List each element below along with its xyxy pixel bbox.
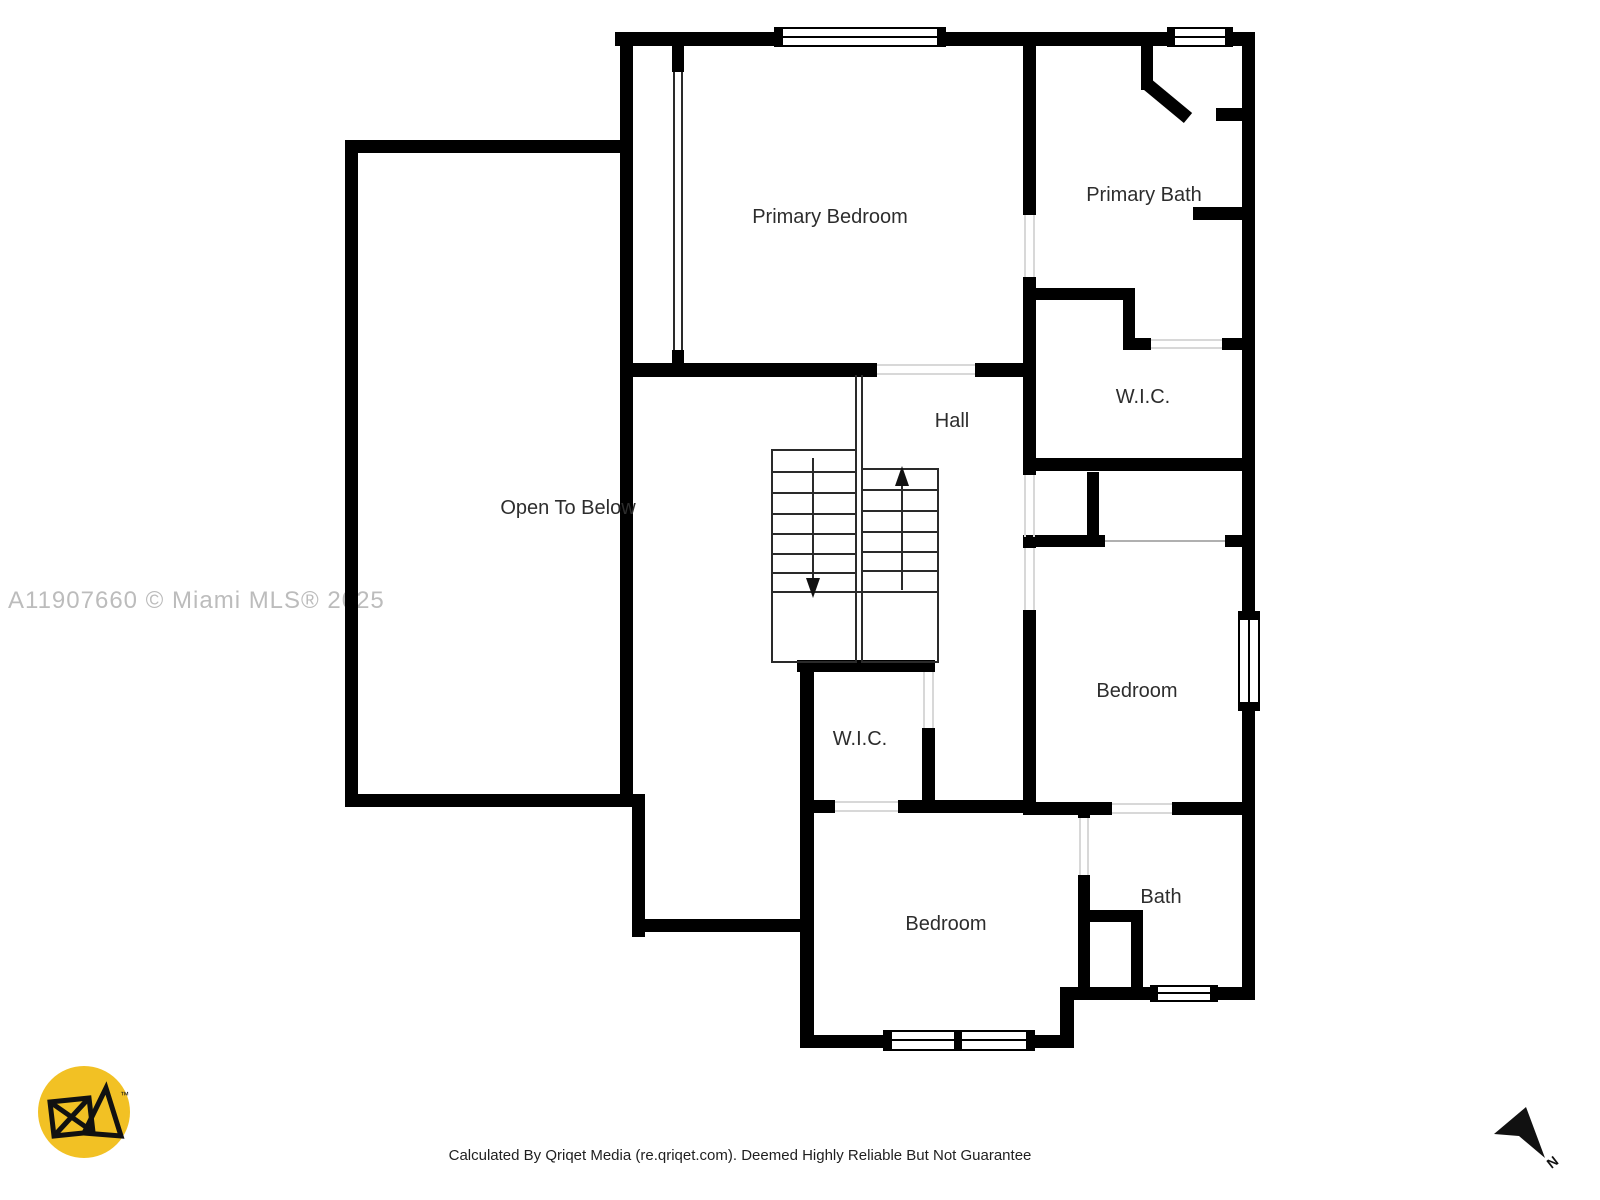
wall-diagonal xyxy=(1147,84,1188,118)
wall xyxy=(1225,535,1255,547)
wall xyxy=(1023,277,1036,475)
wall xyxy=(800,800,835,813)
wall xyxy=(1087,472,1099,547)
room-label-wic-upper: W.I.C. xyxy=(1116,386,1170,408)
staircase xyxy=(772,375,938,662)
wall xyxy=(1216,108,1255,121)
wall xyxy=(1078,875,1090,1000)
wall xyxy=(620,363,877,377)
wall xyxy=(632,794,645,937)
compass-north-label: N xyxy=(1543,1153,1561,1172)
wall xyxy=(1023,610,1036,815)
room-label-primary-bath: Primary Bath xyxy=(1086,184,1202,206)
wall xyxy=(345,140,628,153)
compass: N xyxy=(1494,1107,1561,1172)
wall xyxy=(1193,207,1255,220)
room-label-hall: Hall xyxy=(935,410,969,432)
wall xyxy=(898,800,1036,813)
room-label-primary-bedroom: Primary Bedroom xyxy=(752,206,908,228)
wall xyxy=(345,140,358,807)
compass-north-arrow-icon xyxy=(1494,1107,1545,1158)
wall xyxy=(1172,802,1255,815)
room-label-bath: Bath xyxy=(1140,886,1181,908)
brand-logo: ™ xyxy=(38,1066,130,1158)
footer-disclaimer: Calculated By Qriqet Media (re.qriqet.co… xyxy=(449,1147,1032,1164)
room-label-bedroom-right: Bedroom xyxy=(1096,680,1177,702)
wall xyxy=(1078,802,1090,818)
railing-lines xyxy=(674,72,682,350)
floor-plan-page: A11907660 © Miami MLS® 2025 xyxy=(0,0,1600,1200)
windows xyxy=(775,28,1259,1050)
wall xyxy=(1023,458,1255,471)
wall xyxy=(345,794,645,807)
window-bath xyxy=(1151,986,1217,1001)
wall xyxy=(800,660,814,1048)
window-top-primary-bath xyxy=(1168,28,1232,46)
room-label-bedroom-lower: Bedroom xyxy=(905,913,986,935)
wall xyxy=(1123,338,1151,350)
trademark-symbol: ™ xyxy=(120,1090,129,1100)
mls-watermark: A11907660 © Miami MLS® 2025 xyxy=(8,587,385,614)
wall xyxy=(1023,288,1135,300)
room-label-wic-middle: W.I.C. xyxy=(833,728,887,750)
window-bottom-bedroom xyxy=(884,1031,1034,1050)
wall xyxy=(1222,338,1255,350)
wall xyxy=(632,919,814,932)
window-top-primary-bedroom xyxy=(775,28,945,46)
floor-plan-canvas: A11907660 © Miami MLS® 2025 xyxy=(0,0,1600,1200)
wall xyxy=(1242,32,1255,1000)
window-right-bedroom xyxy=(1239,612,1259,710)
wall xyxy=(1023,802,1112,815)
wall xyxy=(672,45,684,72)
stair-down-arrow-icon xyxy=(806,578,820,598)
wall xyxy=(672,350,684,365)
room-label-open-to-below: Open To Below xyxy=(500,497,636,519)
wall xyxy=(1023,45,1036,215)
wall xyxy=(1131,910,1143,1000)
